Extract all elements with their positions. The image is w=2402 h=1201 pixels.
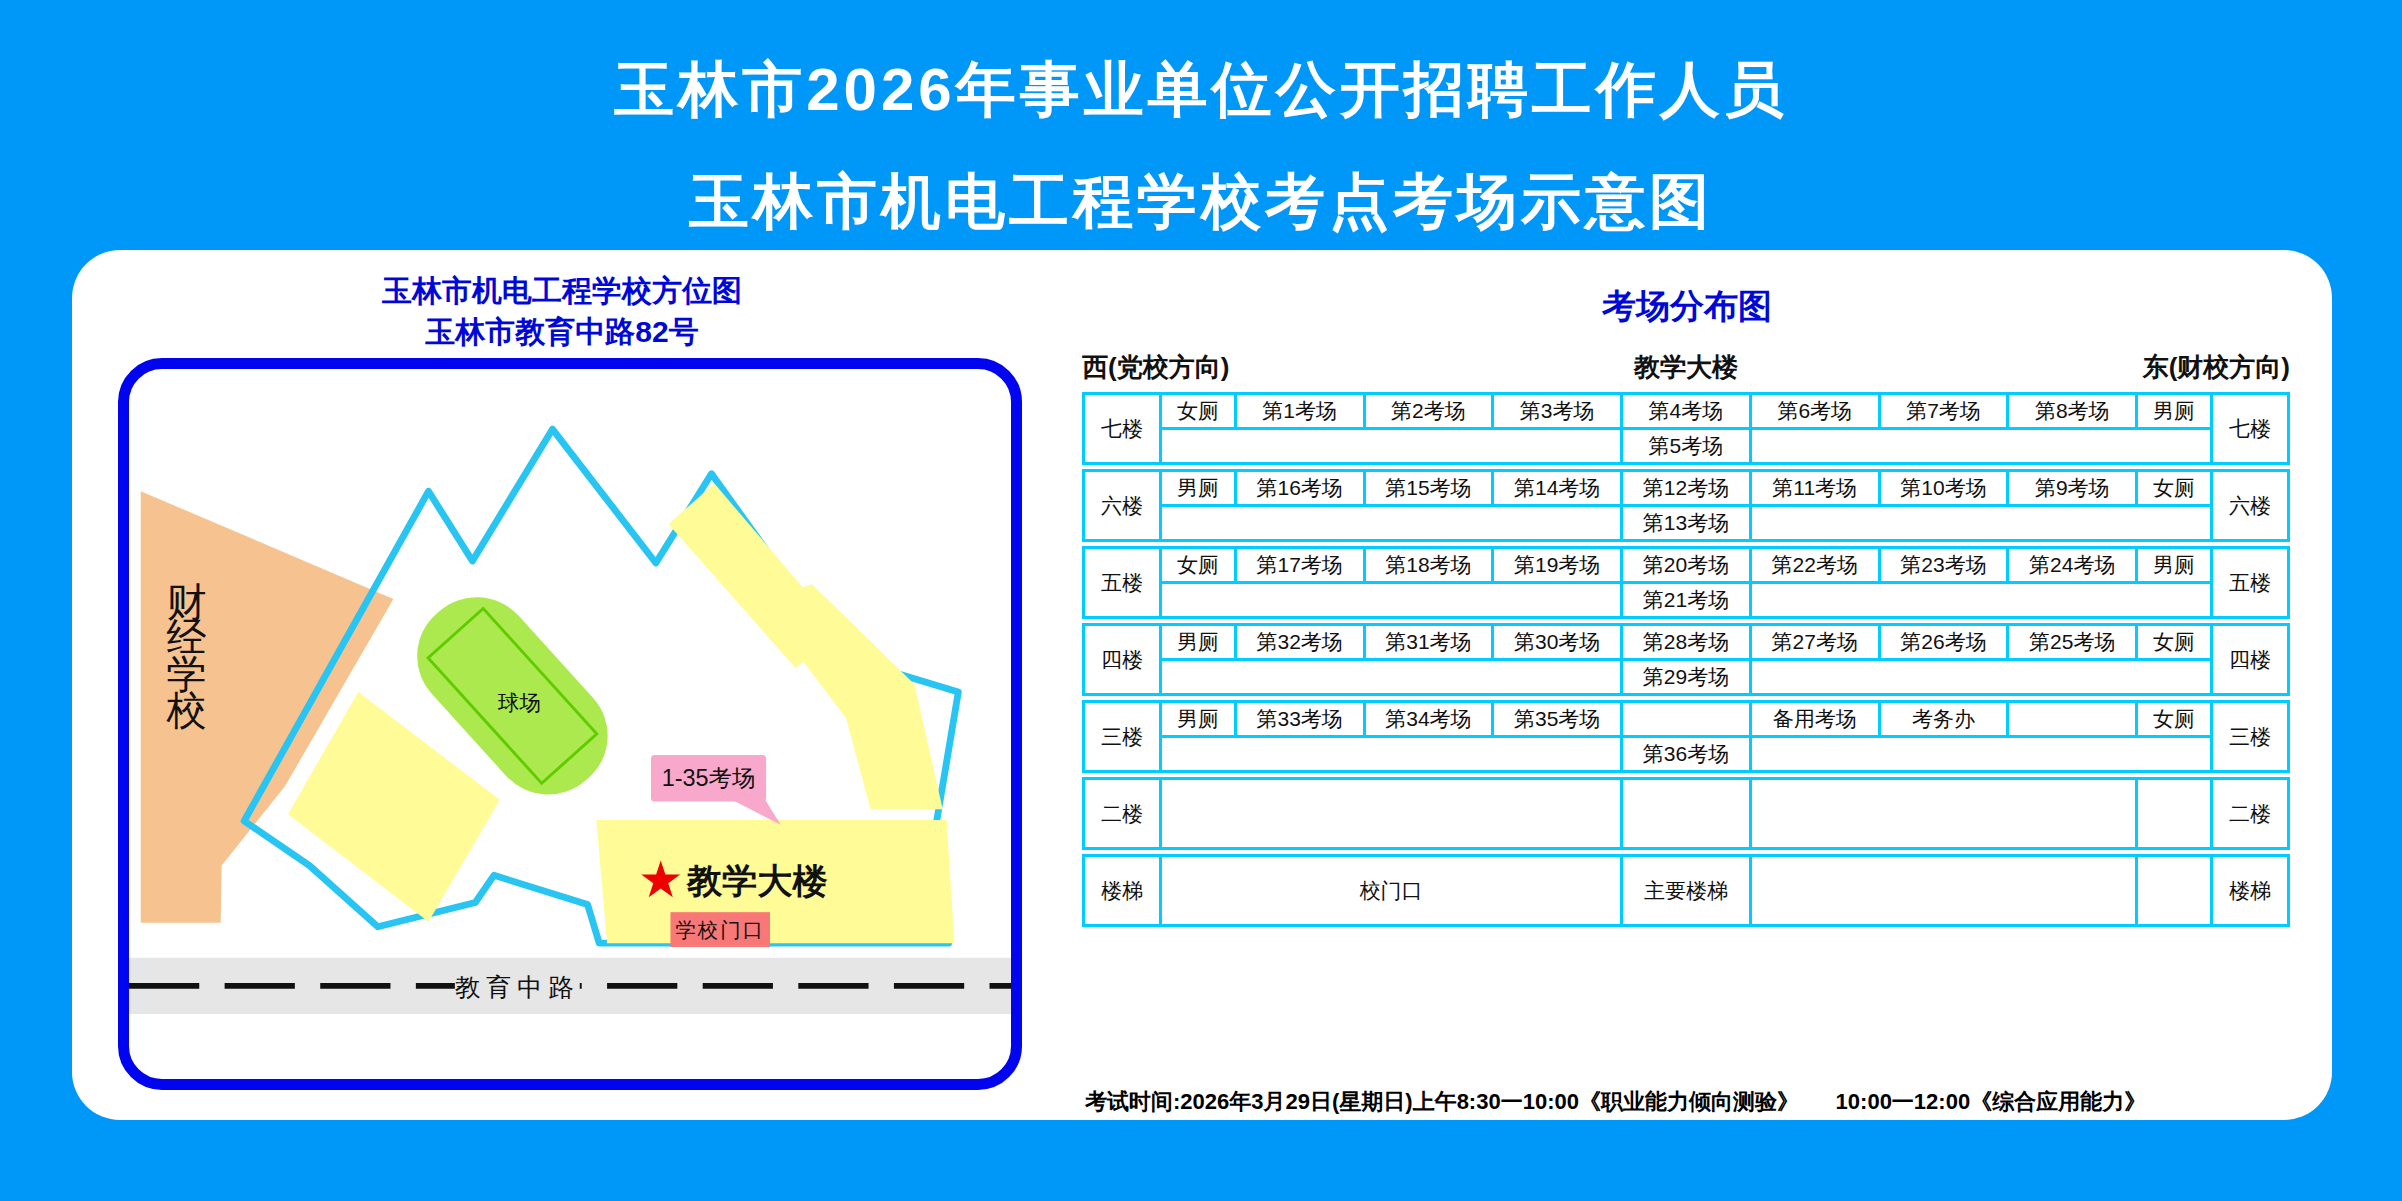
room-cell: 第34考场 (1364, 702, 1493, 737)
floor-band: 五楼女厕第17考场第18考场第19考场第20考场第22考场第23考场第24考场男… (1082, 546, 2290, 619)
wide-cell-left (1161, 429, 1622, 464)
content-panel: 玉林市机电工程学校方位图 玉林市教育中路82号 财经学校 球场 1- (72, 250, 2332, 1120)
floor-band: 七楼女厕第1考场第2考场第3考场第4考场第6考场第7考场第8考场男厕七楼第5考场 (1082, 392, 2290, 465)
wide-cell-left (1161, 583, 1622, 618)
mid-room-cell: 第21考场 (1622, 583, 1751, 618)
floor-label: 七楼 (1084, 394, 1161, 464)
room-cell: 第19考场 (1493, 548, 1622, 583)
room-cell (2008, 702, 2137, 737)
room-cell: 第22考场 (1750, 548, 1879, 583)
room-cell: 第4考场 (1622, 394, 1751, 429)
direction-center-label: 教学大楼 (1634, 350, 1738, 385)
mid-room-cell: 第5考场 (1622, 429, 1751, 464)
star-icon: ★ (638, 851, 683, 908)
wide-cell-left (1161, 660, 1622, 695)
room-cell: 第15考场 (1364, 471, 1493, 506)
wide-cell-right (1750, 779, 2136, 849)
room-cell: 第6考场 (1750, 394, 1879, 429)
room-cell: 第26考场 (1879, 625, 2008, 660)
map-title-line1: 玉林市机电工程学校方位图 (72, 270, 1052, 311)
poster-title-line1: 玉林市2026年事业单位公开招聘工作人员 (0, 34, 2402, 146)
room-cell: 第28考场 (1622, 625, 1751, 660)
floor-band: 四楼男厕第32考场第31考场第30考场第28考场第27考场第26考场第25考场女… (1082, 623, 2290, 696)
room-cell: 第1考场 (1235, 394, 1364, 429)
mid-cell: 主要楼梯 (1622, 856, 1751, 926)
distribution-title: 考场分布图 (1082, 284, 2292, 330)
teaching-building-label: 教学大楼 (686, 861, 827, 900)
room-cell: 第18考场 (1364, 548, 1493, 583)
exam-time-note: 考试时间:2026年3月29日(星期日)上午8:30一10:00《职业能力倾向测… (1085, 1082, 2146, 1122)
wide-cell-right (1750, 429, 2211, 464)
room-cell: 第12考场 (1622, 471, 1751, 506)
room-cell: 第31考场 (1364, 625, 1493, 660)
building-right-chevron (758, 584, 942, 809)
room-cell: 男厕 (1161, 471, 1236, 506)
wide-cell-left (1161, 737, 1622, 772)
room-cell: 第27考场 (1750, 625, 1879, 660)
wide-cell-right (1750, 856, 2136, 926)
floor-label: 六楼 (1084, 471, 1161, 541)
room-cell: 第3考场 (1493, 394, 1622, 429)
floor-label: 四楼 (2211, 625, 2288, 695)
wide-cell-right (1750, 506, 2211, 541)
map-title-line2: 玉林市教育中路82号 (72, 311, 1052, 352)
floor-label: 六楼 (2211, 471, 2288, 541)
poster-title-line2: 玉林市机电工程学校考点考场示意图 (0, 146, 2402, 258)
direction-east-label: 东(财校方向) (2143, 350, 2290, 385)
room-cell: 第9考场 (2008, 471, 2137, 506)
mid-room-cell: 第36考场 (1622, 737, 1751, 772)
road-label: 教育中路 (455, 973, 580, 1001)
floor-label: 楼梯 (1084, 856, 1161, 926)
room-cell: 第2考场 (1364, 394, 1493, 429)
room-cell: 第35考场 (1493, 702, 1622, 737)
finance-school-label: 财经学校 (160, 550, 215, 694)
room-cell: 第33考场 (1235, 702, 1364, 737)
room-cell: 第11考场 (1750, 471, 1879, 506)
campus-map-svg: 球场 1-35考场 ★ 教学大楼 学校门口 教育中路 (129, 369, 1011, 1079)
sports-field-label: 球场 (498, 691, 541, 715)
room-cell: 第16考场 (1235, 471, 1364, 506)
floor-label: 五楼 (2211, 548, 2288, 618)
room-cell: 女厕 (1161, 394, 1236, 429)
room-cell: 第25考场 (2008, 625, 2137, 660)
room-cell: 第17考场 (1235, 548, 1364, 583)
map-title: 玉林市机电工程学校方位图 玉林市教育中路82号 (72, 270, 1052, 352)
room-cell: 第8考场 (2008, 394, 2137, 429)
room-cell: 男厕 (2137, 548, 2212, 583)
mid-room-cell: 第29考场 (1622, 660, 1751, 695)
room-cell: 第23考场 (1879, 548, 2008, 583)
floor-label: 五楼 (1084, 548, 1161, 618)
room-cell: 男厕 (1161, 702, 1236, 737)
room-cell: 第10考场 (1879, 471, 2008, 506)
room-cell: 备用考场 (1750, 702, 1879, 737)
room-cell: 女厕 (2137, 625, 2212, 660)
room-cell: 第30考场 (1493, 625, 1622, 660)
rooms-callout-label: 1-35考场 (662, 765, 756, 791)
direction-row: 西(党校方向) 教学大楼 东(财校方向) (1082, 350, 2290, 385)
floor-band: 二楼二楼 (1082, 777, 2290, 850)
room-cell (1622, 702, 1751, 737)
campus-map: 球场 1-35考场 ★ 教学大楼 学校门口 教育中路 (118, 358, 1022, 1090)
room-cell: 女厕 (2137, 702, 2212, 737)
floor-label: 楼梯 (2211, 856, 2288, 926)
room-cell: 男厕 (1161, 625, 1236, 660)
floor-label: 三楼 (1084, 702, 1161, 772)
toilet-cell (2137, 779, 2212, 849)
floor-band: 六楼男厕第16考场第15考场第14考场第12考场第11考场第10考场第9考场女厕… (1082, 469, 2290, 542)
wide-cell-left (1161, 506, 1622, 541)
floor-tables: 七楼女厕第1考场第2考场第3考场第4考场第6考场第7考场第8考场男厕七楼第5考场… (1082, 392, 2290, 931)
room-cell: 第20考场 (1622, 548, 1751, 583)
room-cell: 女厕 (2137, 471, 2212, 506)
floor-label: 二楼 (1084, 779, 1161, 849)
wide-cell-right (1750, 583, 2211, 618)
page-background: { "title": { "line1": "玉林市2026年事业单位公开招聘工… (0, 0, 2402, 1201)
poster-title: 玉林市2026年事业单位公开招聘工作人员 玉林市机电工程学校考点考场示意图 (0, 34, 2402, 258)
room-cell: 第32考场 (1235, 625, 1364, 660)
mid-room-cell: 第13考场 (1622, 506, 1751, 541)
room-cell: 第14考场 (1493, 471, 1622, 506)
school-gate-label: 学校门口 (675, 919, 765, 941)
wide-cell-right (1750, 737, 2211, 772)
mid-cell (1622, 779, 1751, 849)
wide-cell-right (1750, 660, 2211, 695)
room-cell: 男厕 (2137, 394, 2212, 429)
wide-cell-left: 校门口 (1161, 856, 1622, 926)
toilet-cell (2137, 856, 2212, 926)
floor-band: 三楼男厕第33考场第34考场第35考场备用考场考务办女厕三楼第36考场 (1082, 700, 2290, 773)
room-cell: 考务办 (1879, 702, 2008, 737)
floor-label: 七楼 (2211, 394, 2288, 464)
floor-band: 楼梯校门口主要楼梯楼梯 (1082, 854, 2290, 927)
direction-west-label: 西(党校方向) (1082, 350, 1229, 385)
room-cell: 第24考场 (2008, 548, 2137, 583)
wide-cell-left (1161, 779, 1622, 849)
floor-label: 二楼 (2211, 779, 2288, 849)
room-cell: 第7考场 (1879, 394, 2008, 429)
floor-label: 四楼 (1084, 625, 1161, 695)
exam-notes: 考试时间:2026年3月29日(星期日)上午8:30一10:00《职业能力倾向测… (1085, 1002, 2146, 1201)
room-cell: 女厕 (1161, 548, 1236, 583)
floor-label: 三楼 (2211, 702, 2288, 772)
